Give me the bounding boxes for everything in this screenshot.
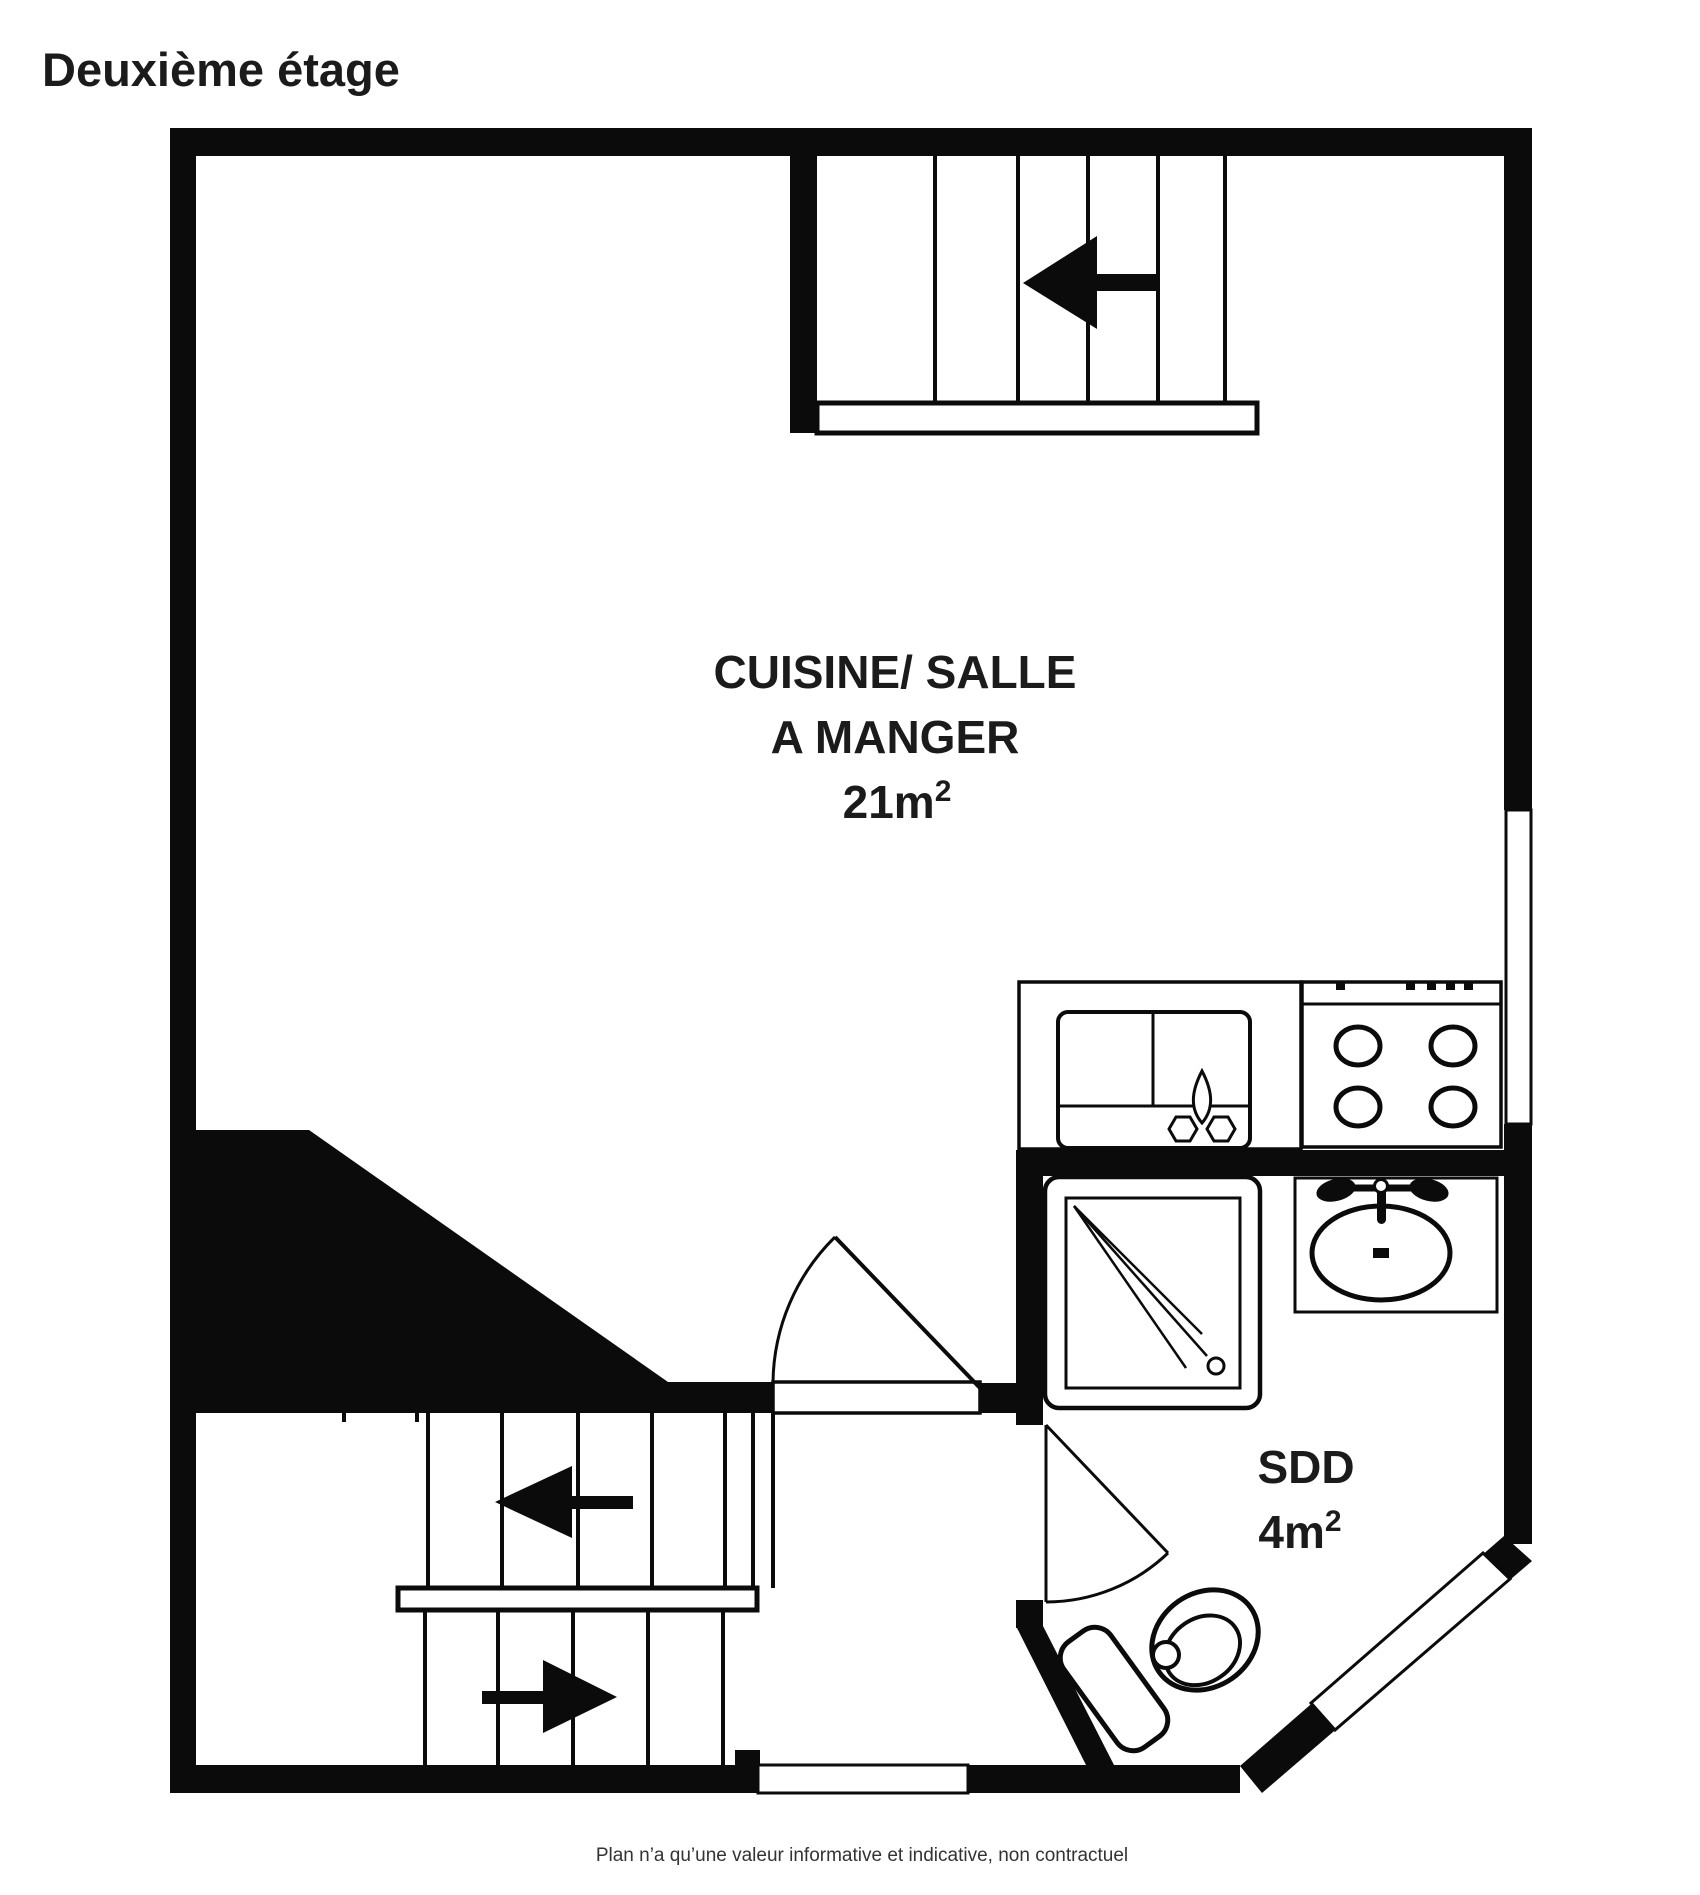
staircase-top-landing-bar [817, 403, 1257, 433]
wall-door-hinge-stub [980, 1383, 1018, 1413]
kitchen-label-line1: CUISINE/ SALLE [714, 646, 1077, 698]
burner [1336, 1088, 1380, 1126]
floor-plan-page: Deuxième étage CUISINE/ SALLE A MANGER 2… [0, 0, 1700, 1895]
washbasin-drain [1373, 1248, 1389, 1258]
wall-bathroom-left [1016, 1150, 1043, 1425]
wall-bottom-right [968, 1765, 1240, 1793]
wall-bottom-left [170, 1765, 740, 1793]
knob [1427, 982, 1436, 990]
knob [1464, 982, 1473, 990]
shower-drain-icon [1208, 1358, 1224, 1374]
sink-tap-hex-left [1169, 1117, 1197, 1141]
sink-tap-hex-right [1207, 1117, 1235, 1141]
door-threshold-living [773, 1382, 980, 1413]
page-title: Deuxième étage [42, 43, 400, 96]
disclaimer-text: Plan n’a qu’une valeur informative et in… [596, 1845, 1128, 1866]
wall-left [170, 128, 196, 1793]
kitchen-fixtures [1019, 982, 1501, 1149]
burner [1336, 1027, 1380, 1065]
wall-top [170, 128, 1532, 156]
wall-bottom-jamb [735, 1750, 760, 1793]
wall-stair-room [196, 1382, 773, 1413]
bathroom-area-value: 4m [1258, 1506, 1324, 1558]
bathroom-label: SDD [1257, 1441, 1354, 1493]
window-right-wall [1506, 810, 1531, 1124]
toilet-hinge [1153, 1642, 1179, 1668]
window-bottom-wall [758, 1765, 968, 1793]
knob [1406, 982, 1415, 990]
knob [1446, 982, 1455, 990]
kitchen-label-line2: A MANGER [771, 711, 1020, 763]
kitchen-area-superscript: 2 [935, 775, 952, 808]
wall-bathroom-top [1016, 1150, 1504, 1176]
staircase-lower-landing-bar [398, 1588, 757, 1610]
bathroom-area-superscript: 2 [1325, 1505, 1342, 1538]
knob [1336, 982, 1345, 990]
kitchen-area-value: 21m [843, 776, 935, 828]
wall-stairwell-top [790, 128, 817, 433]
wall-right-upper [1504, 128, 1532, 810]
faucet-cap [1375, 1180, 1388, 1193]
stove [1302, 982, 1501, 1147]
wall-bathroom-left-stub [1016, 1600, 1043, 1628]
wall-right-lower [1504, 1124, 1532, 1544]
floor-plan: Deuxième étage CUISINE/ SALLE A MANGER 2… [0, 0, 1700, 1895]
burner [1431, 1088, 1475, 1126]
burner [1431, 1027, 1475, 1065]
